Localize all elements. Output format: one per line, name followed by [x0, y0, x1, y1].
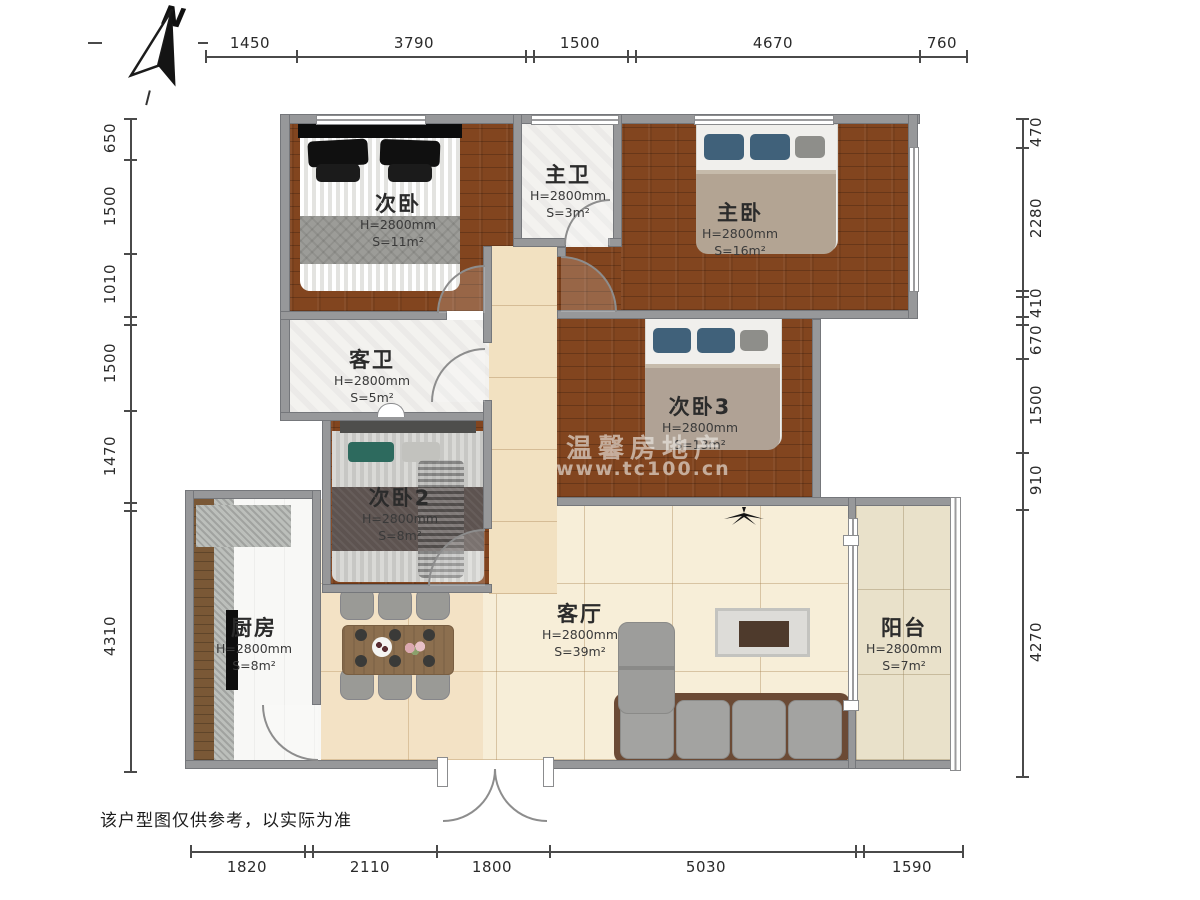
dimension-tick	[124, 324, 137, 326]
room-height: H=2800mm	[334, 372, 410, 389]
wall-segment	[608, 238, 622, 247]
room-name: 次卧	[360, 192, 436, 216]
room-label-master-bedroom: 主卧 H=2800mm S=16m²	[702, 201, 778, 259]
dimension-line	[130, 118, 132, 771]
room-label-guest-bath: 客卫 H=2800mm S=5m²	[334, 348, 410, 406]
room-label-living-room: 客厅 H=2800mm S=39m²	[542, 602, 618, 660]
dimension-label: 1470	[101, 436, 119, 476]
dimension-tick	[205, 50, 207, 63]
flower-vase	[402, 640, 428, 656]
dimension-tick	[549, 845, 551, 858]
dimension-tick	[124, 118, 137, 120]
window	[316, 115, 426, 125]
room-area: S=16m²	[702, 242, 778, 259]
dimension-label: 4270	[1027, 622, 1045, 662]
bed-headboard	[340, 420, 476, 433]
sofa-chaise	[618, 622, 675, 714]
sliding-door-handle	[843, 700, 859, 711]
room-name: 客厅	[542, 602, 618, 626]
dimension-label: 2110	[350, 858, 390, 876]
dimension-tick	[1016, 509, 1029, 511]
disclaimer-text: 该户型图仅供参考，以实际为准	[100, 806, 352, 831]
sofa-cushion	[732, 700, 786, 759]
dimension-line	[1022, 118, 1024, 776]
dimension-tick	[124, 410, 137, 412]
sliding-door-handle	[843, 535, 859, 546]
balcony-sliding-door	[848, 518, 858, 710]
room-name: 主卧	[702, 201, 778, 225]
ceiling-fan-icon	[722, 505, 766, 527]
room-height: H=2800mm	[702, 225, 778, 242]
dimension-tick	[1016, 776, 1029, 778]
dimension-label: 910	[1027, 465, 1045, 495]
wall-segment	[185, 490, 194, 769]
room-area: S=11m²	[360, 233, 436, 250]
wall-segment	[483, 400, 492, 529]
pillow	[795, 136, 825, 158]
room-height: H=2800mm	[530, 187, 606, 204]
wall-segment	[812, 319, 821, 506]
corridor-floor	[489, 246, 557, 594]
kitchen-counter-top	[196, 505, 291, 547]
dimension-tick	[855, 845, 857, 858]
dimension-tick	[124, 159, 137, 161]
room-label-kitchen: 厨房 H=2800mm S=8m²	[216, 616, 292, 674]
room-height: H=2800mm	[542, 626, 618, 643]
wall-segment	[513, 238, 566, 247]
dimension-tick	[296, 50, 298, 63]
dimension-line	[205, 56, 966, 58]
dimension-label: 1500	[101, 343, 119, 383]
dimension-tick	[124, 253, 137, 255]
centerpiece-bowl	[372, 637, 392, 657]
dimension-tick	[1016, 358, 1029, 360]
dimension-tick	[525, 50, 527, 63]
dimension-label: 760	[927, 34, 957, 52]
balcony-window-wall	[950, 497, 961, 771]
room-area: S=8m²	[362, 527, 438, 544]
wall-segment	[546, 760, 958, 769]
pillow	[316, 164, 360, 182]
dimension-label: 410	[1027, 288, 1045, 318]
place-setting	[389, 629, 401, 641]
compass-needle-icon	[122, 0, 202, 118]
pillow	[704, 134, 744, 160]
dimension-tick	[312, 845, 314, 858]
tv	[739, 621, 789, 647]
dimension-label: 670	[1027, 325, 1045, 355]
room-height: H=2800mm	[362, 510, 438, 527]
room-name: 厨房	[216, 616, 292, 640]
pillow	[653, 328, 691, 353]
room-name: 次卧3	[662, 395, 738, 419]
dimension-tick	[635, 50, 637, 63]
room-area: S=39m²	[542, 643, 618, 660]
wall-segment	[312, 490, 321, 705]
dimension-tick	[962, 845, 964, 858]
dimension-tick	[1016, 452, 1029, 454]
window	[909, 147, 919, 292]
dimension-label: 1590	[892, 858, 932, 876]
dimension-tick	[627, 50, 629, 63]
dimension-label: 1800	[472, 858, 512, 876]
wall-segment	[322, 420, 331, 593]
pillow	[380, 139, 441, 167]
dimension-tick	[919, 50, 921, 63]
place-setting	[389, 655, 401, 667]
room-area: S=5m²	[334, 389, 410, 406]
wall-segment	[613, 114, 622, 247]
dimension-label: 650	[101, 123, 119, 153]
room-area: S=3m²	[530, 204, 606, 221]
place-setting	[355, 655, 367, 667]
dimension-tick	[304, 845, 306, 858]
room-name: 阳台	[866, 616, 942, 640]
watermark-url: www.tc100.cn	[556, 458, 731, 480]
room-height: H=2800mm	[360, 216, 436, 233]
wall-segment	[280, 311, 447, 320]
pillow	[348, 442, 394, 462]
room-area: S=8m²	[216, 657, 292, 674]
room-label-bedroom2: 次卧2 H=2800mm S=8m²	[362, 486, 438, 544]
dimension-label: 1010	[101, 264, 119, 304]
dimension-dash	[198, 42, 208, 44]
wall-segment	[185, 490, 321, 499]
pillow	[402, 442, 440, 462]
wall-segment	[557, 497, 958, 506]
dimension-label: 1500	[101, 186, 119, 226]
sofa-cushion	[676, 700, 730, 759]
place-setting	[355, 629, 367, 641]
dimension-tick	[863, 845, 865, 858]
window	[694, 115, 834, 125]
place-setting	[423, 655, 435, 667]
room-label-bedroom1: 次卧 H=2800mm S=11m²	[360, 192, 436, 250]
pillow	[740, 330, 768, 351]
dimension-tick	[533, 50, 535, 63]
dimension-tick	[436, 845, 438, 858]
wall-segment	[280, 114, 290, 421]
dimension-label: 4670	[753, 34, 793, 52]
pillow	[750, 134, 790, 160]
room-label-master-bath: 主卫 H=2800mm S=3m²	[530, 163, 606, 221]
dimension-tick	[124, 771, 137, 773]
dimension-tick	[124, 502, 137, 504]
dimension-tick	[190, 845, 192, 858]
door-jamb	[543, 757, 554, 787]
dimension-dash	[88, 42, 102, 44]
window	[531, 115, 619, 125]
pillow	[388, 164, 432, 182]
dimension-line	[190, 851, 962, 853]
dimension-label: 5030	[686, 858, 726, 876]
dimension-label: 1450	[230, 34, 270, 52]
floor-plan-canvas: N 1450 3790 1500 4670 760	[0, 0, 1200, 900]
sofa-cushion	[788, 700, 842, 759]
dimension-label: 1500	[1027, 385, 1045, 425]
room-label-balcony: 阳台 H=2800mm S=7m²	[866, 616, 942, 674]
room-name: 客卫	[334, 348, 410, 372]
room-height: H=2800mm	[216, 640, 292, 657]
entrance-door-arc	[443, 769, 496, 822]
wall-segment	[185, 760, 443, 769]
dimension-label: 4310	[101, 616, 119, 656]
room-height: H=2800mm	[866, 640, 942, 657]
pillow	[697, 328, 735, 353]
dimension-tick	[1016, 147, 1029, 149]
compass: N	[122, 0, 212, 118]
dimension-label: 2280	[1027, 198, 1045, 238]
dimension-tick	[124, 316, 137, 318]
entrance-door-arc	[494, 769, 547, 822]
dimension-label: 470	[1027, 117, 1045, 147]
room-area: S=7m²	[866, 657, 942, 674]
dimension-tick	[124, 510, 137, 512]
dimension-label: 1820	[227, 858, 267, 876]
dimension-label: 3790	[394, 34, 434, 52]
bed-headboard	[298, 124, 462, 138]
dimension-tick	[966, 50, 968, 63]
room-name: 次卧2	[362, 486, 438, 510]
wall-segment	[513, 114, 522, 247]
room-name: 主卫	[530, 163, 606, 187]
dimension-label: 1500	[560, 34, 600, 52]
door-jamb	[437, 757, 448, 787]
